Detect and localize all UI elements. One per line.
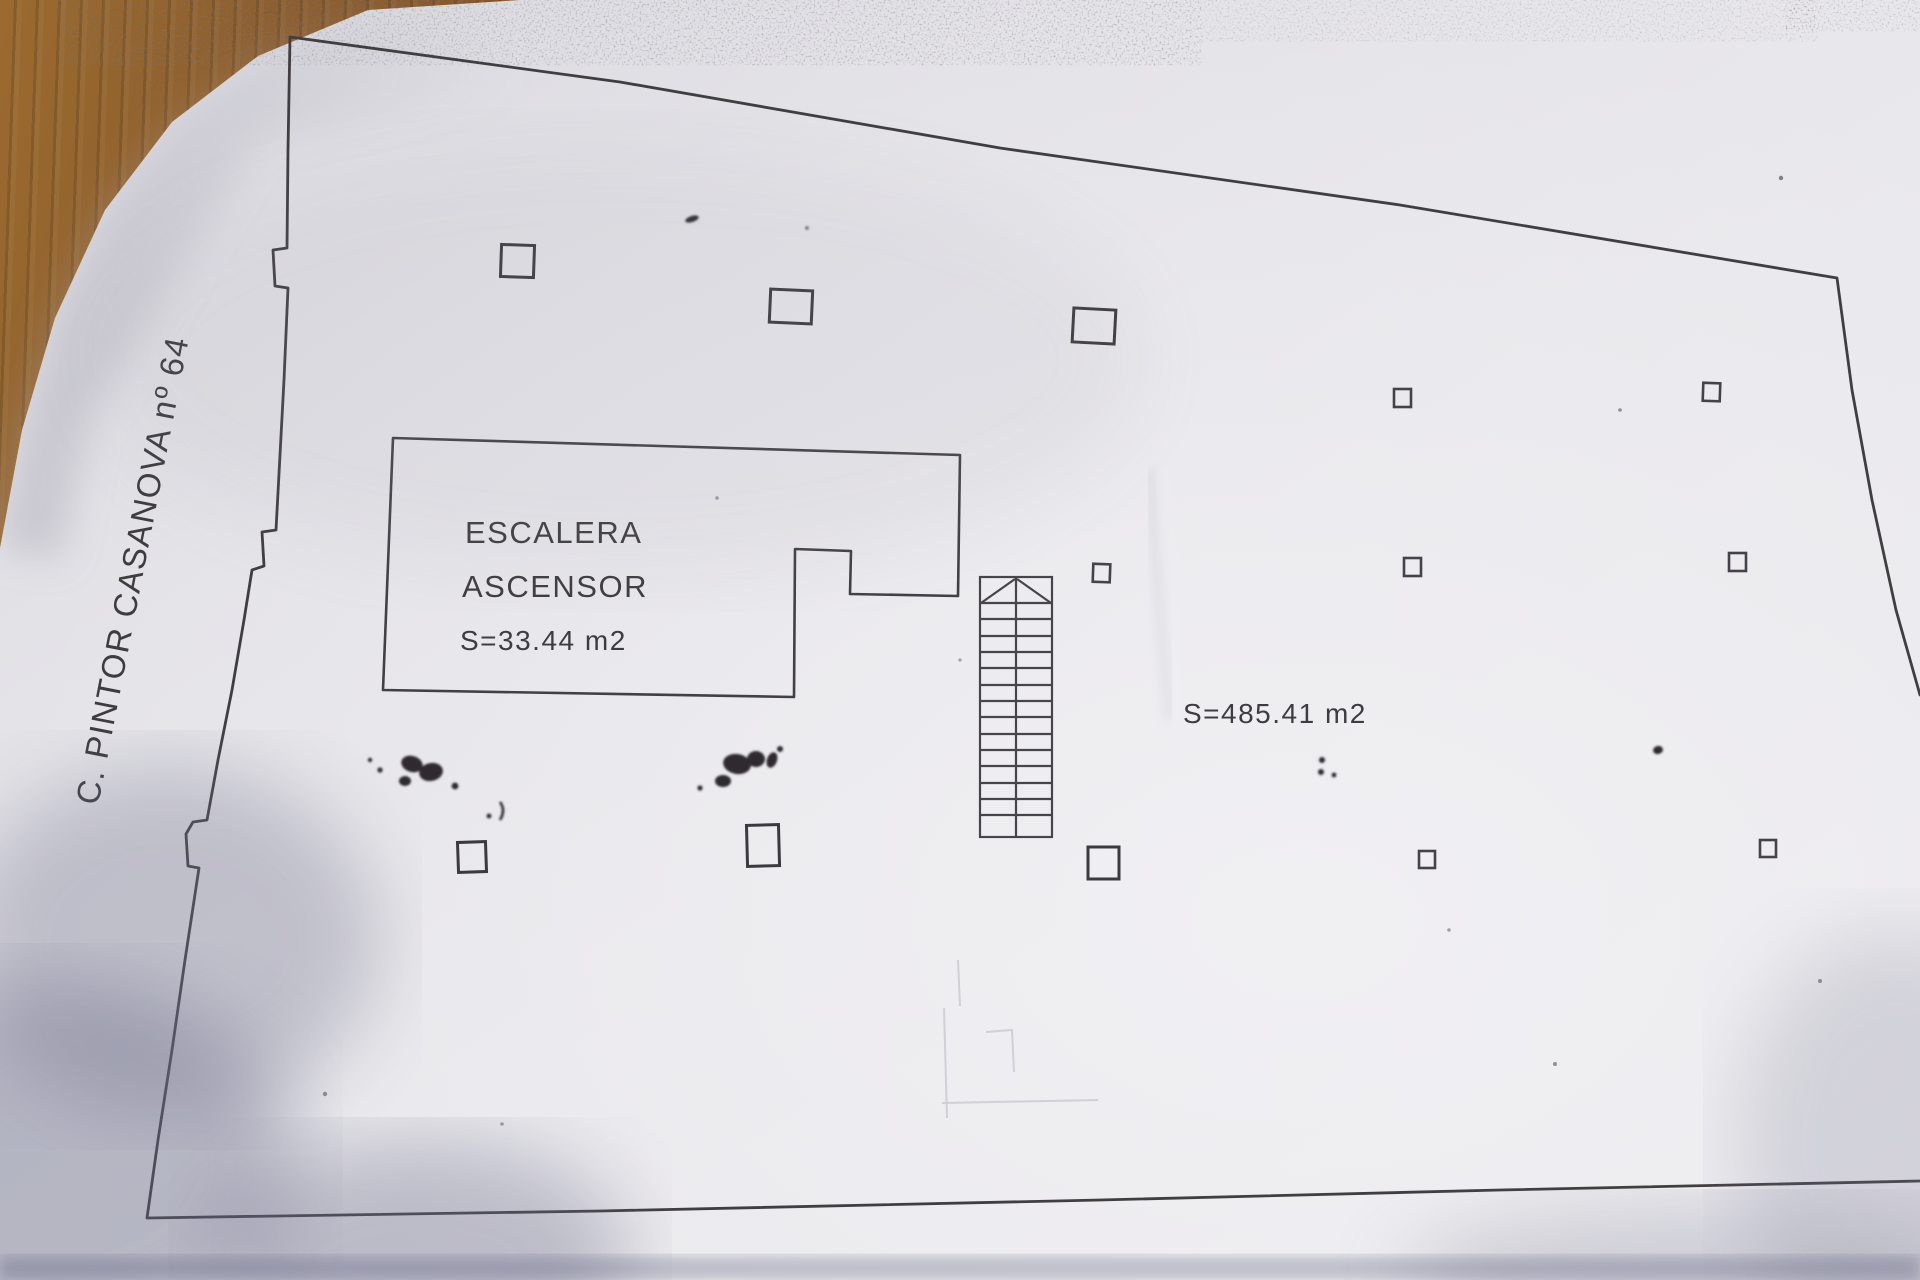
stair-room-area-label: S=33.44 m2 (460, 625, 627, 656)
floor-plan-photo-svg: ESCALERA ASCENSOR S=33.44 m2 (0, 0, 1920, 1280)
main-area-label: S=485.41 m2 (1183, 698, 1367, 729)
photo-of-floor-plan: ESCALERA ASCENSOR S=33.44 m2 (0, 0, 1920, 1280)
bottom-edge-shadow (0, 1256, 1920, 1280)
noise-band-top-right (1230, 0, 1790, 40)
soft-lighting-band (100, 150, 1140, 570)
noise-band-corner-right (1790, 0, 1920, 30)
stair-room-label-ascensor: ASCENSOR (462, 569, 648, 604)
